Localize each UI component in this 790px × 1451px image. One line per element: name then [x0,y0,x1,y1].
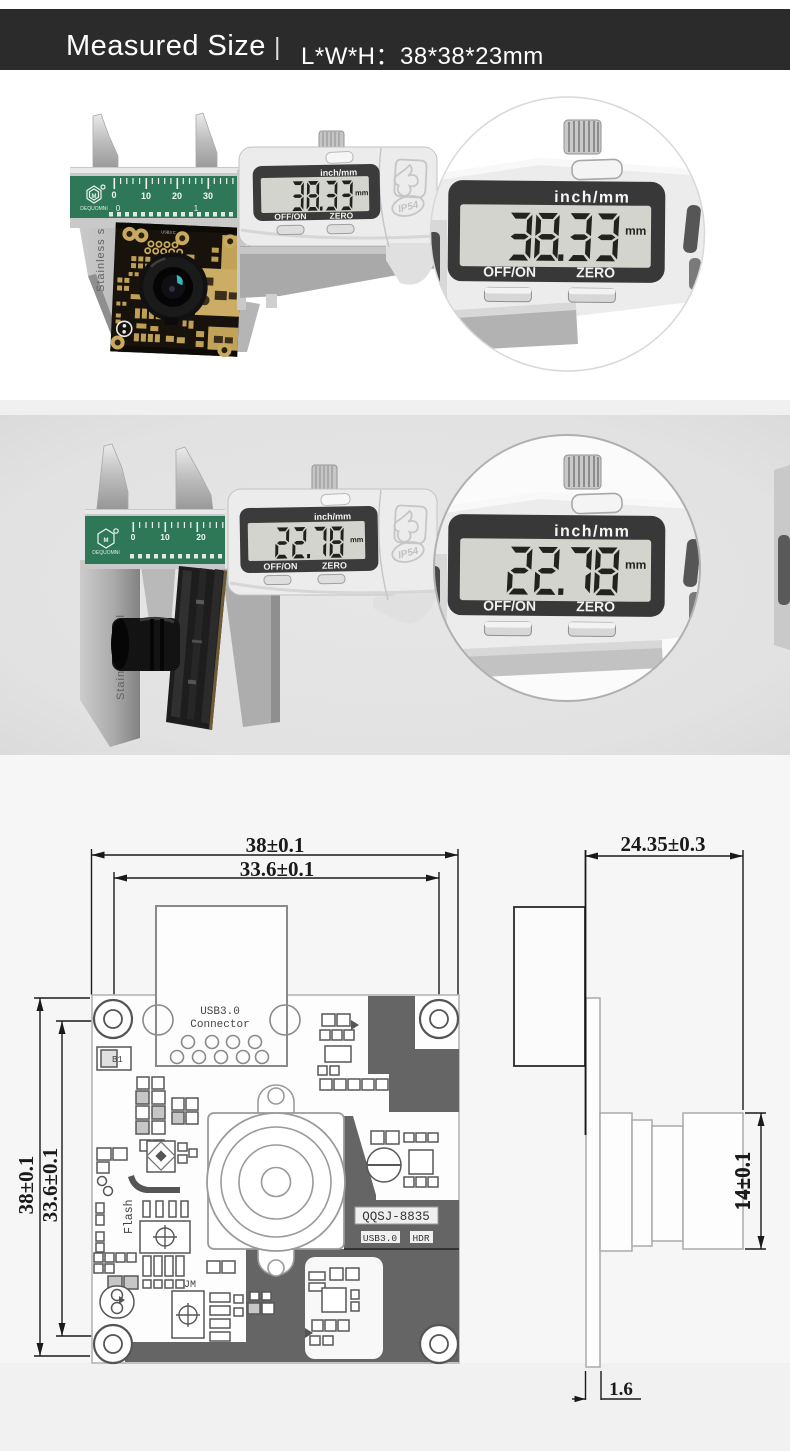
svg-text:mm: mm [625,558,646,572]
svg-text:OFF/ON: OFF/ON [274,211,306,222]
svg-text:inch/mm: inch/mm [554,189,630,207]
svg-text:mm: mm [355,188,369,197]
svg-text:1: 1 [194,204,199,213]
svg-text:38±0.1: 38±0.1 [246,833,305,857]
svg-text:ZERO: ZERO [322,560,347,570]
svg-text:1.6: 1.6 [609,1379,633,1400]
svg-text:mm: mm [350,535,364,544]
svg-text:mm: mm [625,224,646,238]
svg-text:20: 20 [196,532,206,542]
svg-text:24.35±0.3: 24.35±0.3 [620,832,705,856]
svg-text:inch/mm: inch/mm [320,167,357,178]
svg-text:Flash: Flash [123,1199,136,1234]
svg-text:HDR: HDR [412,1233,429,1244]
svg-text:33.6±0.1: 33.6±0.1 [38,1148,62,1223]
svg-text:10: 10 [141,191,151,201]
svg-text:0: 0 [116,204,121,213]
svg-text:10: 10 [160,532,170,542]
svg-text:DEQUOMNI: DEQUOMNI [92,550,120,556]
svg-text:0: 0 [131,532,136,542]
svg-text:QQSJ-8835: QQSJ-8835 [362,1210,430,1224]
svg-text:20: 20 [172,191,182,201]
svg-text:Connector: Connector [190,1019,249,1031]
svg-text:ZERO: ZERO [330,210,354,220]
svg-text:DEQUOMNI: DEQUOMNI [80,206,108,212]
svg-text:USB3 C: USB3 C [161,229,176,235]
svg-text:JM: JM [184,1280,196,1291]
svg-text:38±0.1: 38±0.1 [14,1156,38,1215]
svg-text:OFF/ON: OFF/ON [483,597,536,613]
svg-text:inch/mm: inch/mm [314,511,351,522]
svg-text:ZERO: ZERO [576,598,615,614]
svg-text:USB3.0: USB3.0 [200,1006,240,1018]
svg-text:OFF/ON: OFF/ON [263,561,297,572]
svg-text:14±0.1: 14±0.1 [730,1152,754,1211]
svg-text:30: 30 [203,191,213,201]
svg-text:M: M [92,194,97,200]
svg-text:ZERO: ZERO [576,264,615,280]
svg-text:inch/mm: inch/mm [554,523,630,541]
svg-text:0: 0 [111,190,116,200]
svg-text:M: M [104,538,109,544]
svg-text:OFF/ON: OFF/ON [483,263,536,279]
svg-text:B1: B1 [112,1055,123,1065]
svg-text:USB3.0: USB3.0 [363,1233,398,1244]
